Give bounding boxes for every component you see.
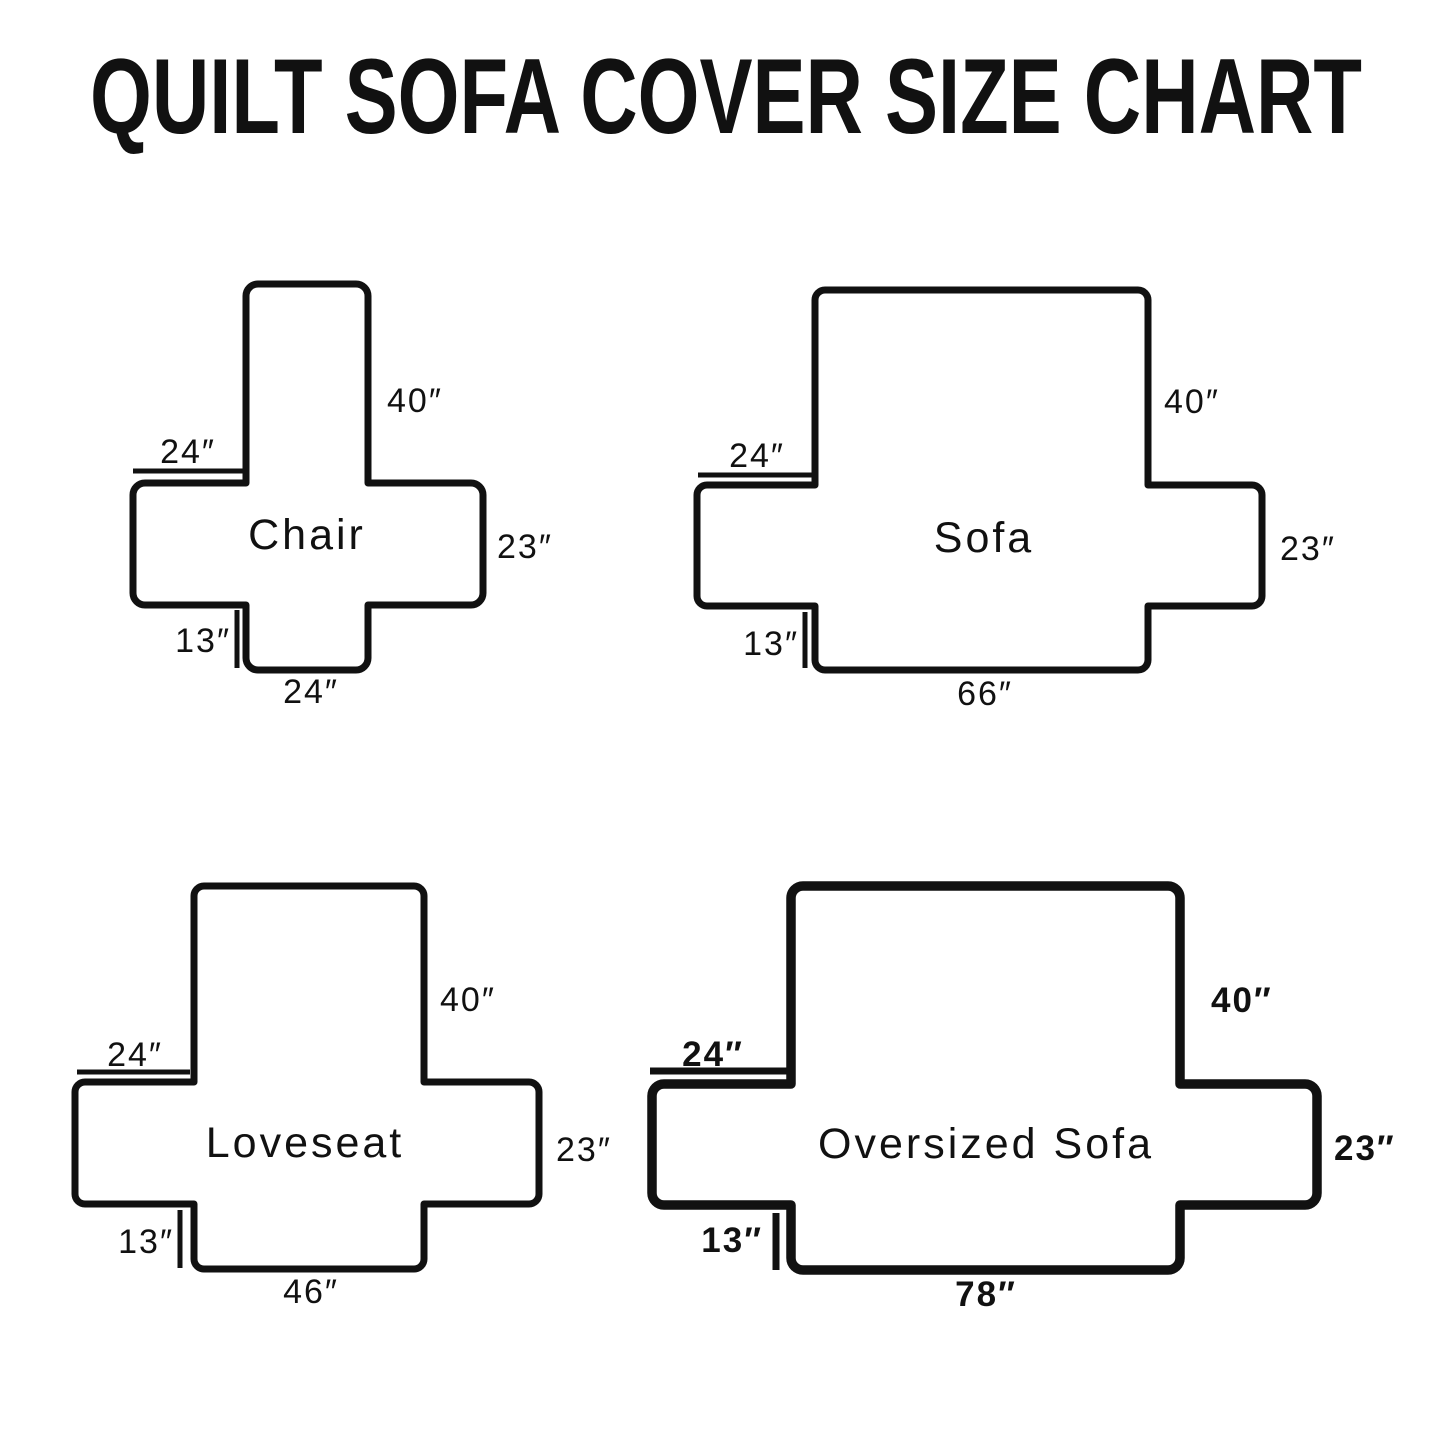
chair-name-label: Chair xyxy=(248,511,366,559)
diagram-oversized-sofa: 40″ 24″ Oversized Sofa 23″ 13″ 78″ xyxy=(650,886,1396,1314)
oversized-sofa-arm-width-label: 24″ xyxy=(682,1035,744,1074)
loveseat-back-height-label: 40″ xyxy=(440,981,496,1019)
chair-side-height-label: 23″ xyxy=(497,528,553,566)
size-chart: QUILT SOFA COVER SIZE CHART 40″ 24″ Chai… xyxy=(0,0,1445,1435)
chair-back-height-label: 40″ xyxy=(387,382,443,420)
diagram-loveseat: 40″ 24″ Loveseat 23″ 13″ 46″ xyxy=(75,886,612,1311)
page-title: QUILT SOFA COVER SIZE CHART xyxy=(90,36,1362,156)
oversized-sofa-side-height-label: 23″ xyxy=(1334,1129,1396,1168)
loveseat-skirt-height-label: 13″ xyxy=(118,1223,174,1261)
oversized-sofa-name-label: Oversized Sofa xyxy=(818,1120,1154,1168)
loveseat-name-label: Loveseat xyxy=(206,1119,405,1167)
sofa-cover-outline xyxy=(697,290,1262,670)
sofa-name-label: Sofa xyxy=(934,514,1034,562)
loveseat-side-height-label: 23″ xyxy=(556,1131,612,1169)
sofa-arm-width-label: 24″ xyxy=(729,437,785,475)
sofa-side-height-label: 23″ xyxy=(1280,530,1336,568)
oversized-sofa-seat-width-label: 78″ xyxy=(955,1275,1017,1314)
oversized-sofa-cover-outline xyxy=(652,886,1317,1270)
diagram-sofa: 40″ 24″ Sofa 23″ 13″ 66″ xyxy=(697,290,1336,713)
loveseat-arm-width-label: 24″ xyxy=(107,1036,163,1074)
loveseat-cover-outline xyxy=(75,886,539,1269)
chair-skirt-height-label: 13″ xyxy=(175,622,231,660)
chair-seat-width-label: 24″ xyxy=(283,673,339,711)
size-chart-canvas: QUILT SOFA COVER SIZE CHART 40″ 24″ Chai… xyxy=(0,0,1445,1435)
oversized-sofa-back-height-label: 40″ xyxy=(1211,981,1273,1020)
chair-arm-width-label: 24″ xyxy=(160,433,216,471)
chair-cover-outline xyxy=(133,284,483,670)
sofa-skirt-height-label: 13″ xyxy=(743,625,799,663)
sofa-back-height-label: 40″ xyxy=(1164,383,1220,421)
sofa-seat-width-label: 66″ xyxy=(957,675,1013,713)
diagram-chair: 40″ 24″ Chair 23″ 13″ 24″ xyxy=(133,284,553,711)
oversized-sofa-skirt-height-label: 13″ xyxy=(701,1221,763,1260)
loveseat-seat-width-label: 46″ xyxy=(283,1273,339,1311)
